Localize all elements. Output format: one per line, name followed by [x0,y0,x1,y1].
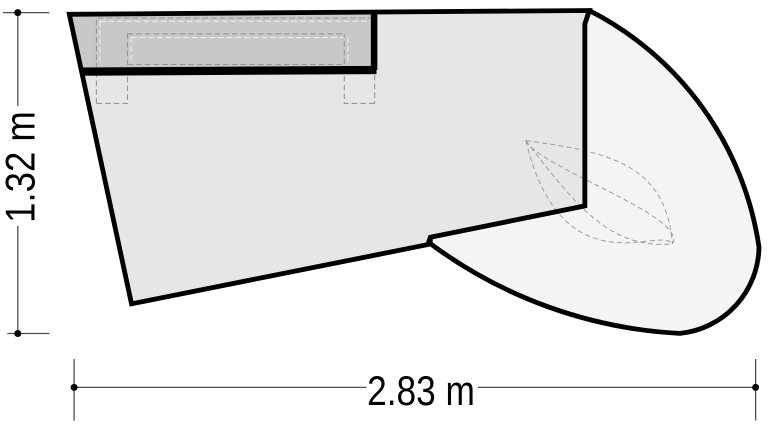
svg-text:2.83 m: 2.83 m [367,368,475,415]
svg-text:1.32 m: 1.32 m [0,111,44,223]
